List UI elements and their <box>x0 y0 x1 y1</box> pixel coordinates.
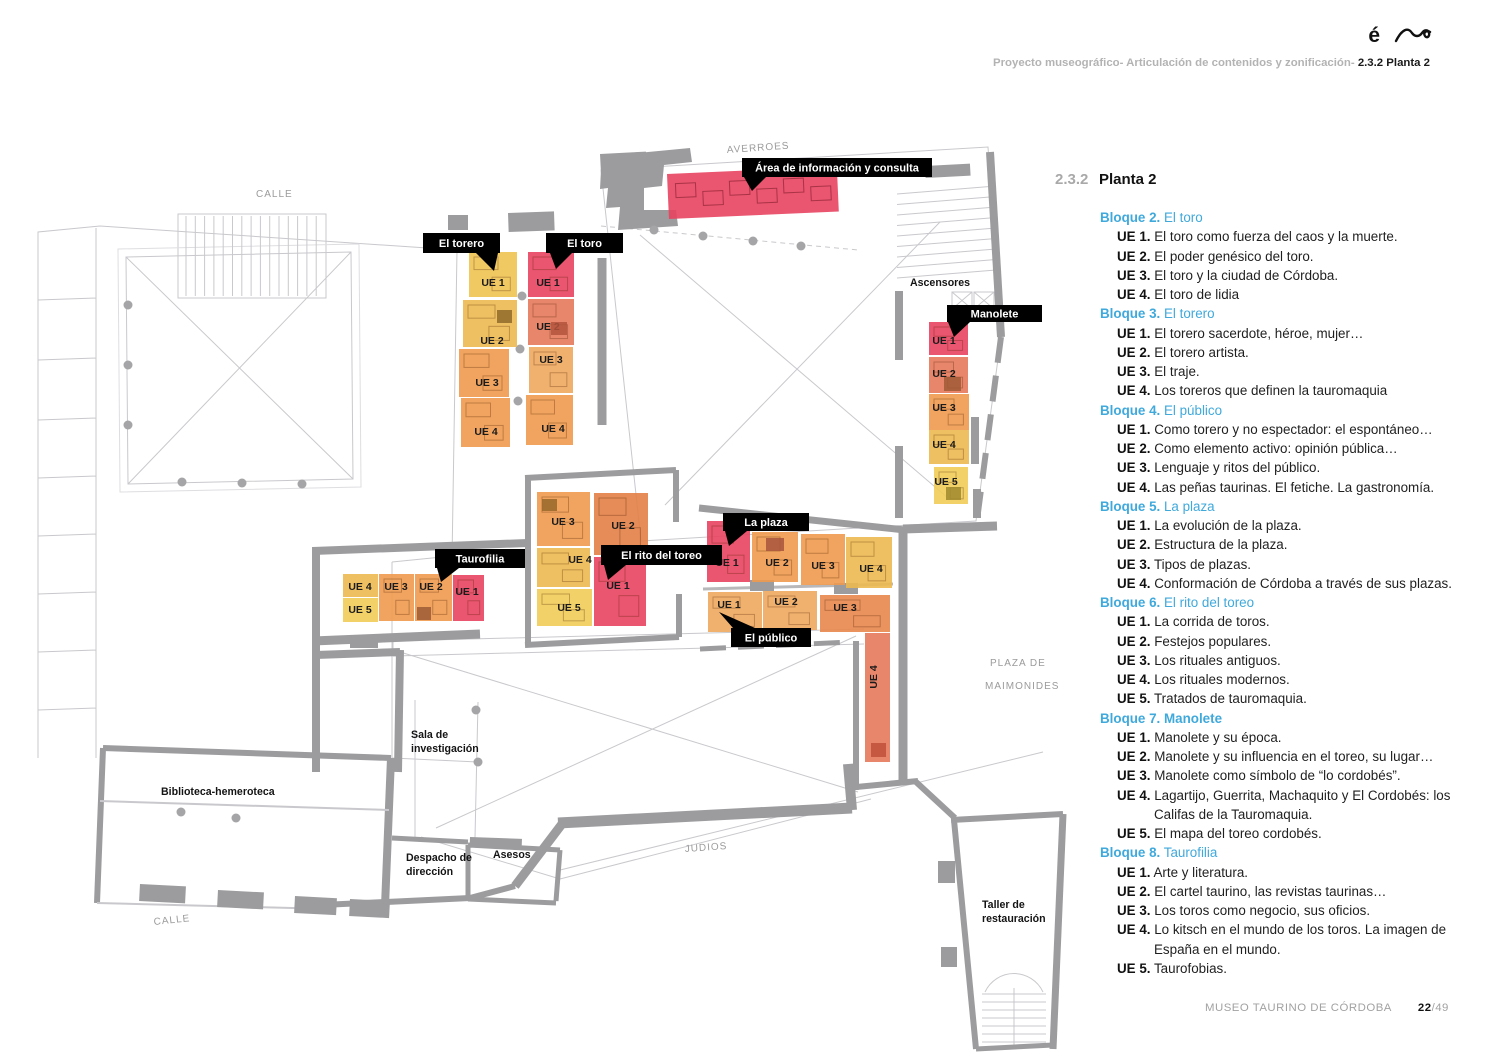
legend-block: Bloque 3. El toreroUE 1. El torero sacer… <box>1100 304 1464 400</box>
legend-ue-number: UE 3. <box>1117 364 1151 379</box>
room-ue-label: UE 1 <box>606 580 630 592</box>
room-ue-label: UE 3 <box>811 560 835 572</box>
room-ue-label: UE 3 <box>539 354 563 366</box>
legend-block-number: Bloque 2. <box>1100 210 1160 225</box>
legend-ue-item: UE 4. Conformación de Córdoba a través d… <box>1117 574 1464 593</box>
plan-room: UE 3 <box>379 574 414 621</box>
room-name-label: Ascensores <box>910 277 970 289</box>
exhibit-accent <box>766 538 784 551</box>
legend-block-heading: Bloque 5. La plaza <box>1100 497 1464 516</box>
legend-ue-item: UE 4. Lagartijo, Guerrita, Machaquito y … <box>1117 786 1464 825</box>
legend-ue-number: UE 2. <box>1117 345 1151 360</box>
legend-block-number: Bloque 7. <box>1100 711 1160 726</box>
legend-ue-number: UE 1. <box>1117 518 1151 533</box>
room-ue-label: UE 4 <box>541 423 565 435</box>
legend-panel: 2.3.2Planta 2 Bloque 2. El toroUE 1. El … <box>1055 171 1460 978</box>
plan-room: UE 4 <box>929 430 969 464</box>
room-ue-label: UE 4 <box>474 426 498 438</box>
legend-ue-number: UE 3. <box>1117 268 1151 283</box>
bull-squiggle-icon <box>1394 24 1434 48</box>
legend-block-heading: Bloque 7. Manolete <box>1100 709 1464 728</box>
legend-block-heading: Bloque 4. El público <box>1100 401 1464 420</box>
zone-callout-label: El toro <box>567 238 602 250</box>
legend-ue-item: UE 4. Las peñas taurinas. El fetiche. La… <box>1117 478 1464 497</box>
legend-ue-number: UE 5. <box>1117 691 1151 706</box>
exhibit-accent <box>871 743 886 757</box>
legend-ue-number: UE 4. <box>1117 576 1151 591</box>
room-ue-label: UE 2 <box>480 335 504 347</box>
legend-ue-item: UE 3. Los rituales antiguos. <box>1117 651 1464 670</box>
zone-callout-label: Taurofilia <box>456 554 506 566</box>
room-ue-label: UE 1 <box>481 277 505 289</box>
page-title: Planta 2 <box>1099 171 1157 188</box>
legend-ue-item: UE 3. Los toros como negocio, sus oficio… <box>1117 901 1464 920</box>
legend-ue-item: UE 2. El poder genésico del toro. <box>1117 247 1464 266</box>
zone-callout-label: La plaza <box>744 517 788 529</box>
legend-ue-number: UE 4. <box>1117 287 1151 302</box>
room-ue-label: UE 3 <box>384 581 408 593</box>
legend-ue-item: UE 3. Tipos de plazas. <box>1117 555 1464 574</box>
legend-ue-number: UE 4. <box>1117 788 1151 803</box>
plan-room: UE 1 <box>453 575 484 621</box>
legend-ue-item: UE 5. Taurofobias. <box>1117 959 1464 978</box>
room-name-label: investigación <box>411 743 479 755</box>
plan-room: UE 4 <box>537 548 592 587</box>
room-ue-label: UE 5 <box>557 602 581 614</box>
room-name-label: Despacho de <box>406 852 472 864</box>
room-ue-label: UE 1 <box>717 599 741 611</box>
exhibit-accent <box>417 607 431 620</box>
legend-ue-item: UE 1. Como torero y no espectador: el es… <box>1117 420 1464 439</box>
legend-ue-item: UE 4. Los rituales modernos. <box>1117 670 1464 689</box>
room-name-label: Sala de <box>411 729 448 741</box>
legend-ue-number: UE 2. <box>1117 537 1151 552</box>
legend-ue-item: UE 2. Festejos populares. <box>1117 632 1464 651</box>
breadcrumb-current: 2.3.2 Planta 2 <box>1358 57 1430 69</box>
legend-block: Bloque 8. TaurofiliaUE 1. Arte y literat… <box>1100 843 1464 978</box>
legend-ue-number: UE 1. <box>1117 326 1151 341</box>
page-footer: MUSEO TAURINO DE CÓRDOBA22/49 <box>1205 1002 1449 1014</box>
room-name-label: Biblioteca-hemeroteca <box>161 786 275 798</box>
logo: é <box>1368 24 1434 48</box>
legend-ue-number: UE 1. <box>1117 865 1151 880</box>
legend-ue-number: UE 4. <box>1117 922 1151 937</box>
exhibit-accent <box>497 310 512 323</box>
legend-ue-item: UE 1. Arte y literatura. <box>1117 863 1464 882</box>
street-label: AVERROES <box>726 141 789 156</box>
legend-block-title: El público <box>1160 403 1222 418</box>
room-ue-label: UE 4 <box>348 581 372 593</box>
legend-block-title: El toro <box>1160 210 1202 225</box>
plan-room: UE 4 <box>526 395 573 445</box>
legend-block-number: Bloque 5. <box>1100 499 1160 514</box>
room-ue-label: UE 5 <box>934 476 958 488</box>
legend-ue-item: UE 4. Los toreros que definen la tauroma… <box>1117 381 1464 400</box>
legend-heading: 2.3.2Planta 2 <box>1055 171 1460 188</box>
legend-ue-item: UE 3. Manolete como símbolo de “lo cordo… <box>1117 766 1464 785</box>
exhibit-accent <box>542 499 557 511</box>
legend-block-number: Bloque 3. <box>1100 306 1160 321</box>
plan-room: UE 3 <box>929 394 969 430</box>
plan-room: UE 4 <box>846 537 892 588</box>
room-name-label: Taller de <box>982 899 1025 911</box>
zone-callout-label: Manolete <box>971 309 1019 321</box>
legend-block: Bloque 6. El rito del toreoUE 1. La corr… <box>1100 593 1464 709</box>
page-total: /49 <box>1432 1002 1449 1014</box>
exhibit-accent <box>944 377 961 391</box>
legend-ue-item: UE 4. Lo kitsch en el mundo de los toros… <box>1117 920 1464 959</box>
plan-room: UE 5 <box>343 598 378 622</box>
legend-ue-item: UE 2. Manolete y su influencia en el tor… <box>1117 747 1464 766</box>
legend-ue-number: UE 1. <box>1117 229 1151 244</box>
legend-ue-number: UE 3. <box>1117 768 1151 783</box>
room-ue-label: UE 3 <box>833 602 857 614</box>
plan-room: UE 3 <box>529 347 573 393</box>
zone-callout-label: El torero <box>439 238 485 250</box>
street-label: CALLE <box>256 189 293 200</box>
legend-block-number: Bloque 4. <box>1100 403 1160 418</box>
legend-ue-number: UE 3. <box>1117 557 1151 572</box>
legend-block-heading: Bloque 8. Taurofilia <box>1100 843 1464 862</box>
plan-room: UE 4 <box>343 574 378 597</box>
zone-callout-label: El rito del toreo <box>621 550 702 562</box>
legend-block-heading: Bloque 6. El rito del toreo <box>1100 593 1464 612</box>
plan-room: UE 2 <box>463 300 517 347</box>
room-ue-label: UE 4 <box>932 439 956 451</box>
legend-ue-item: UE 4. El toro de lidia <box>1117 285 1464 304</box>
room-ue-label: UE 3 <box>475 377 499 389</box>
legend-ue-item: UE 1. El torero sacerdote, héroe, mujer… <box>1117 324 1464 343</box>
legend-ue-item: UE 5. Tratados de tauromaquia. <box>1117 689 1464 708</box>
zone-callout-label: El público <box>745 633 798 645</box>
plan-room: UE 3 <box>801 534 845 585</box>
room-ue-label: UE 5 <box>348 604 372 616</box>
legend-ue-number: UE 4. <box>1117 383 1151 398</box>
legend-block-title: La plaza <box>1160 499 1214 514</box>
zone-callout: El torero <box>423 233 500 271</box>
room-name-label: dirección <box>406 866 453 878</box>
legend-ue-item: UE 3. El toro y la ciudad de Córdoba. <box>1117 266 1464 285</box>
room-ue-label: UE 1 <box>455 586 479 598</box>
plan-room: UE 3 <box>459 349 509 397</box>
room-ue-label: UE 2 <box>611 520 635 532</box>
exhibit-accent <box>551 322 567 335</box>
legend-ue-number: UE 2. <box>1117 884 1151 899</box>
room-ue-label: UE 2 <box>774 596 798 608</box>
street-label: MAIMONIDES <box>985 681 1059 692</box>
logo-accent-letter: é <box>1368 24 1380 48</box>
legend-block-heading: Bloque 2. El toro <box>1100 208 1464 227</box>
legend-ue-number: UE 3. <box>1117 653 1151 668</box>
room-ue-label: UE 3 <box>551 516 575 528</box>
room-ue-label: UE 1 <box>536 277 560 289</box>
legend-ue-number: UE 2. <box>1117 749 1151 764</box>
legend-ue-number: UE 4. <box>1117 480 1151 495</box>
legend-block-heading: Bloque 3. El torero <box>1100 304 1464 323</box>
plan-room: UE 4 <box>461 398 510 447</box>
room-ue-label: UE 4 <box>868 665 880 689</box>
legend-ue-number: UE 1. <box>1117 730 1151 745</box>
plan-room: UE 2 <box>763 591 817 630</box>
plan-room: UE 4 <box>865 633 890 762</box>
page-number: 22 <box>1418 1002 1432 1014</box>
legend-ue-item: UE 3. El traje. <box>1117 362 1464 381</box>
zone-callout-label: Área de información y consulta <box>755 162 920 175</box>
room-name-label: Asesos <box>493 849 531 861</box>
room-name-label: restauración <box>982 913 1046 925</box>
legend-ue-number: UE 3. <box>1117 460 1151 475</box>
legend-ue-item: UE 1. El toro como fuerza del caos y la … <box>1117 227 1464 246</box>
legend-ue-item: UE 1. La evolución de la plaza. <box>1117 516 1464 535</box>
legend-block-number: Bloque 6. <box>1100 595 1160 610</box>
legend-ue-item: UE 3. Lenguaje y ritos del público. <box>1117 458 1464 477</box>
legend-blocks: Bloque 2. El toroUE 1. El toro como fuer… <box>1100 208 1464 978</box>
room-ue-label: UE 2 <box>419 581 443 593</box>
plan-room: UE 3 <box>820 595 890 632</box>
legend-ue-item: UE 1. Manolete y su época. <box>1117 728 1464 747</box>
footer-museum-name: MUSEO TAURINO DE CÓRDOBA <box>1205 1002 1392 1014</box>
legend-ue-item: UE 2. Como elemento activo: opinión públ… <box>1117 439 1464 458</box>
legend-ue-number: UE 5. <box>1117 961 1151 976</box>
legend-block: Bloque 2. El toroUE 1. El toro como fuer… <box>1100 208 1464 304</box>
legend-block: Bloque 5. La plazaUE 1. La evolución de … <box>1100 497 1464 593</box>
legend-block-number: Bloque 8. <box>1100 845 1160 860</box>
exhibit-accent <box>946 487 961 500</box>
plan-room: UE 5 <box>537 589 592 626</box>
street-label: PLAZA DE <box>990 658 1046 669</box>
street-label: JUDIOS <box>684 841 727 855</box>
legend-block-title: El torero <box>1160 306 1214 321</box>
legend-block-title: Manolete <box>1160 711 1222 726</box>
legend-ue-number: UE 2. <box>1117 441 1151 456</box>
legend-ue-number: UE 3. <box>1117 903 1151 918</box>
room-ue-label: UE 3 <box>932 402 956 414</box>
section-number: 2.3.2 <box>1055 171 1099 188</box>
legend-block: Bloque 7. ManoleteUE 1. Manolete y su ép… <box>1100 709 1464 844</box>
legend-ue-item: UE 2. El torero artista. <box>1117 343 1464 362</box>
legend-ue-item: UE 2. El cartel taurino, las revistas ta… <box>1117 882 1464 901</box>
document-page: UE 1UE 2UE 3UE 4UE 1UE 2UE 3UE 4UE 1UE 2… <box>0 0 1500 1061</box>
legend-ue-item: UE 1. La corrida de toros. <box>1117 612 1464 631</box>
legend-ue-number: UE 2. <box>1117 634 1151 649</box>
room-ue-label: UE 4 <box>859 563 883 575</box>
plan-room: UE 1 <box>528 252 574 297</box>
room-ue-label: UE 2 <box>765 557 789 569</box>
legend-ue-item: UE 2. Estructura de la plaza. <box>1117 535 1464 554</box>
street-label: CALLE <box>153 913 191 928</box>
room-ue-label: UE 1 <box>932 335 956 347</box>
breadcrumb: Proyecto museográfico- Articulación de c… <box>993 57 1430 69</box>
legend-ue-number: UE 1. <box>1117 422 1151 437</box>
legend-ue-item: UE 5. El mapa del toreo cordobés. <box>1117 824 1464 843</box>
legend-block-title: El rito del toreo <box>1160 595 1254 610</box>
legend-block-title: Taurofilia <box>1160 845 1217 860</box>
room-ue-label: UE 4 <box>568 554 592 566</box>
breadcrumb-section: Proyecto museográfico- Articulación de c… <box>993 57 1358 69</box>
legend-block: Bloque 4. El públicoUE 1. Como torero y … <box>1100 401 1464 497</box>
legend-ue-number: UE 4. <box>1117 672 1151 687</box>
legend-ue-number: UE 5. <box>1117 826 1151 841</box>
legend-ue-number: UE 2. <box>1117 249 1151 264</box>
legend-ue-number: UE 1. <box>1117 614 1151 629</box>
